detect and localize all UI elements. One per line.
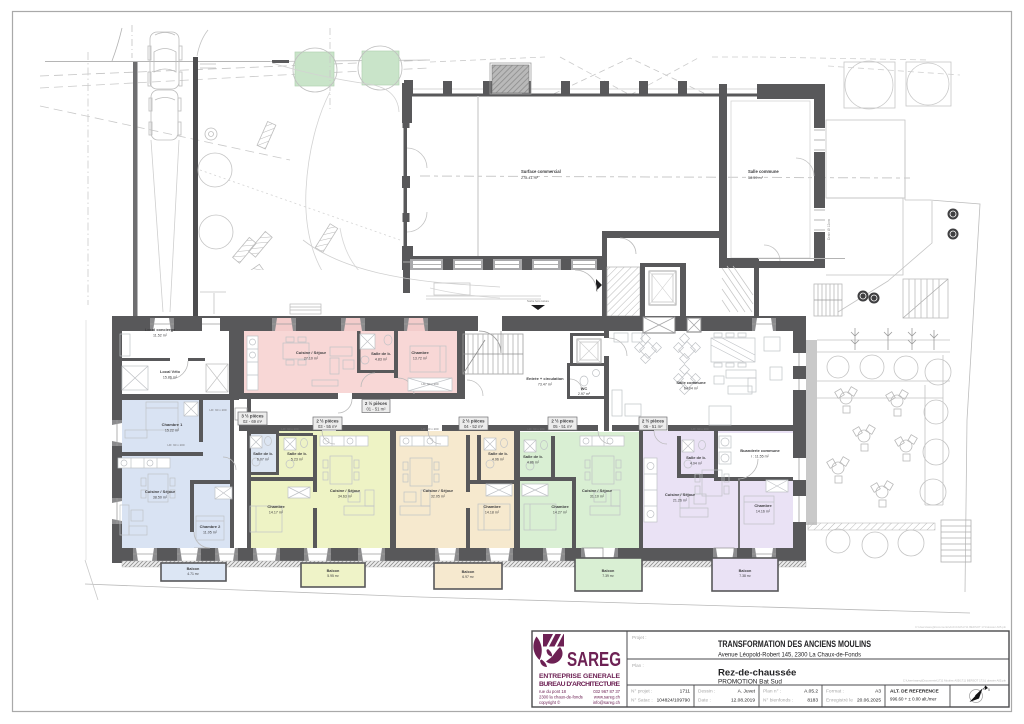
svg-text:Projet :: Projet : [632,635,647,640]
svg-text:Salle de b.: Salle de b. [371,351,391,356]
svg-text:4.96 m²: 4.96 m² [492,458,505,462]
svg-text:N° bienfonds :: N° bienfonds : [763,698,793,704]
svg-text:Sortie hors toiture: Sortie hors toiture [527,299,550,303]
svg-text:Enregistré le: Enregistré le [826,698,853,704]
svg-text:14.17 m²: 14.17 m² [269,511,284,515]
svg-text:Chambre 2: Chambre 2 [200,524,221,529]
svg-text:Buanderie commune: Buanderie commune [740,448,780,453]
svg-text:73.47 m²: 73.47 m² [538,383,553,387]
svg-text:A3: A3 [875,689,881,695]
svg-text:Cuisine / Séjour: Cuisine / Séjour [665,492,696,497]
svg-text:6.07 m²: 6.07 m² [257,458,270,462]
svg-text:32.05 m²: 32.05 m² [431,495,446,499]
svg-text:278.41 m²: 278.41 m² [521,176,539,180]
svg-text:HF: 90 x 200: HF: 90 x 200 [209,408,227,412]
svg-text:06 - 51 m²: 06 - 51 m² [643,424,663,429]
svg-text:7.38 m²: 7.38 m² [739,574,751,578]
svg-text:2 ½ pièces: 2 ½ pièces [462,419,485,424]
svg-text:4.71 m²: 4.71 m² [187,572,199,576]
svg-text:Balcon: Balcon [327,569,340,573]
svg-text:64.04 m²: 64.04 m² [684,387,699,391]
svg-text:Salle de b.: Salle de b. [488,451,508,456]
svg-text:Cuisine / Séjour: Cuisine / Séjour [582,488,613,493]
svg-text:6.97 m²: 6.97 m² [462,575,474,579]
svg-text:Salle de b.: Salle de b. [686,455,706,460]
svg-text:34.63 m²: 34.63 m² [338,495,353,499]
svg-text:2 ½ pièces: 2 ½ pièces [316,419,339,424]
svg-text:Balcon: Balcon [602,569,615,573]
svg-text:copyright ©: copyright © [539,700,561,705]
svg-text:HF: 90 x 200: HF: 90 x 200 [281,427,299,431]
svg-text:Cuisine / Séjour: Cuisine / Séjour [423,488,454,493]
svg-text:38.50 m²: 38.50 m² [153,496,168,500]
svg-text:Chambre: Chambre [754,503,772,508]
svg-text:HF: 90 x 200: HF: 90 x 200 [167,443,185,447]
svg-text:31.10 m²: 31.10 m² [590,495,605,499]
svg-text:PROMOTION Bat Sud: PROMOTION Bat Sud [718,679,782,686]
svg-text:HF: 90 x 200: HF: 90 x 200 [527,427,545,431]
svg-text:58.59 m²: 58.59 m² [748,176,764,180]
svg-text:Date :: Date : [698,698,711,704]
svg-text:4.94 m²: 4.94 m² [690,462,703,466]
svg-text:15.22 m²: 15.22 m² [165,429,180,433]
svg-text:www.sareg.ch: www.sareg.ch [594,695,621,700]
svg-text:2 ½ pièces: 2 ½ pièces [642,419,665,424]
svg-text:5.23 m²: 5.23 m² [291,458,304,462]
svg-text:A.05.2: A.05.2 [804,689,818,695]
svg-text:05 - 51 m²: 05 - 51 m² [553,424,573,429]
svg-text:A. Juvet: A. Juvet [738,689,756,695]
svg-text:ENTREPRISE GENERALE: ENTREPRISE GENERALE [539,673,620,680]
svg-text:TRANSFORMATION DES ANCIENS MOU: TRANSFORMATION DES ANCIENS MOULINS [718,639,871,649]
svg-text:Salle de b.: Salle de b. [523,454,543,459]
svg-text:15.86 m²: 15.86 m² [163,376,178,380]
svg-text:2300 la chaux-de-fonds: 2300 la chaux-de-fonds [539,695,583,700]
svg-text:Chambre: Chambre [551,504,569,509]
svg-text:3 ½ pièces: 3 ½ pièces [241,414,264,419]
svg-text:Local Vélo: Local Vélo [160,369,181,374]
svg-text:Surface commercial: Surface commercial [521,169,561,174]
svg-text:Salle commune: Salle commune [748,169,779,174]
svg-text:Salle de b.: Salle de b. [253,451,273,456]
svg-text:13.72 m²: 13.72 m² [413,357,428,361]
svg-text:Chambre: Chambre [267,504,285,509]
svg-text:21.26 m²: 21.26 m² [673,499,688,503]
svg-text:Chambre: Chambre [483,504,501,509]
svg-text:04 - 52 m²: 04 - 52 m² [464,424,484,429]
svg-text:Dessin :: Dessin : [698,689,715,695]
svg-text:12.08.2019: 12.08.2019 [731,698,755,704]
svg-text:27.10 m²: 27.10 m² [304,357,319,361]
svg-text:C:\Users\sareg\Documents\1711: C:\Users\sareg\Documents\1711 Moulins A0… [903,679,1007,683]
svg-text:Avenue Léopold-Robert 145, 230: Avenue Léopold-Robert 145, 2300 La Chaux… [718,652,862,659]
svg-text:01 - 51 m²: 01 - 51 m² [366,407,386,412]
svg-text:Chambre 1: Chambre 1 [162,422,183,427]
svg-text:Entrée + circulation: Entrée + circulation [526,376,564,381]
svg-text:Cuisine / Séjour: Cuisine / Séjour [145,489,176,494]
svg-text:8183: 8183 [807,698,818,704]
svg-text:Cuisine / Séjour: Cuisine / Séjour [330,488,361,493]
svg-text:2.97 m²: 2.97 m² [578,392,591,396]
svg-text:03 - 55 m²: 03 - 55 m² [318,424,338,429]
svg-text:SAREG: SAREG [567,649,621,671]
svg-text:4.86 m²: 4.86 m² [527,461,540,465]
svg-text:032 967 87 37: 032 967 87 37 [593,689,620,694]
svg-text:Drain Ø 12cm: Drain Ø 12cm [827,219,831,240]
svg-text:Balcon: Balcon [187,567,200,571]
svg-text:14.27 m²: 14.27 m² [553,511,568,515]
svg-text:2 ½ pièces: 2 ½ pièces [551,419,574,424]
svg-text:rue du pont 18: rue du pont 18 [539,689,567,694]
svg-text:Balcon: Balcon [462,570,475,574]
svg-text:WC: WC [581,386,588,391]
svg-text:N° Satac :: N° Satac : [631,698,653,704]
svg-text:Salle commune: Salle commune [676,380,706,385]
svg-text:BUREAU D'ARCHITECTURE: BUREAU D'ARCHITECTURE [539,681,620,688]
svg-text:14.16 m²: 14.16 m² [756,510,771,514]
svg-text:02 - 69 m²: 02 - 69 m² [243,419,263,424]
svg-text:5.95 m²: 5.95 m² [327,574,339,578]
svg-text:HF: 90 x 200: HF: 90 x 200 [421,427,439,431]
svg-text:4.83 m²: 4.83 m² [375,358,388,362]
svg-text:Cuisine / Séjour: Cuisine / Séjour [296,350,327,355]
svg-text:104824/109790: 104824/109790 [657,698,691,704]
svg-text:Format :: Format : [826,689,844,695]
svg-text:HF: 90 x 200: HF: 90 x 200 [421,382,439,386]
svg-text:Chambre: Chambre [411,350,429,355]
svg-text:2 ½ pièces: 2 ½ pièces [365,401,388,406]
svg-text:Balcon: Balcon [739,569,752,573]
svg-text:20.06.2025: 20.06.2025 [857,698,881,704]
svg-text:1711: 1711 [680,689,691,695]
svg-text:C:\Users\sareg\Documents\Archi: C:\Users\sareg\Documents\ArchiCAD\1711 B… [915,625,1006,629]
svg-text:5: 5 [988,688,990,692]
svg-text:Salle de b.: Salle de b. [287,451,307,456]
svg-text:11.52 m²: 11.52 m² [153,334,168,338]
svg-text:Rez-de-chaussée: Rez-de-chaussée [718,668,796,679]
svg-text:HF: 90 x 200: HF: 90 x 200 [691,427,709,431]
svg-text:i : 11.55 m²: i : 11.55 m² [751,455,770,459]
svg-text:Plan :: Plan : [632,663,644,668]
svg-text:ALT. DE REFERENCE: ALT. DE REFERENCE [890,689,939,695]
svg-text:7.39 m²: 7.39 m² [602,574,614,578]
svg-text:14.18 m²: 14.18 m² [485,511,500,515]
svg-text:N° projet :: N° projet : [631,689,652,695]
svg-text:info@sareg.ch: info@sareg.ch [593,700,621,705]
svg-text:996.60 + ± 0.00 alt./mer: 996.60 + ± 0.00 alt./mer [890,697,937,702]
svg-text:Plan n° :: Plan n° : [763,689,781,695]
svg-text:11.05 m²: 11.05 m² [203,531,218,535]
svg-text:Local concierge: Local concierge [145,327,176,332]
